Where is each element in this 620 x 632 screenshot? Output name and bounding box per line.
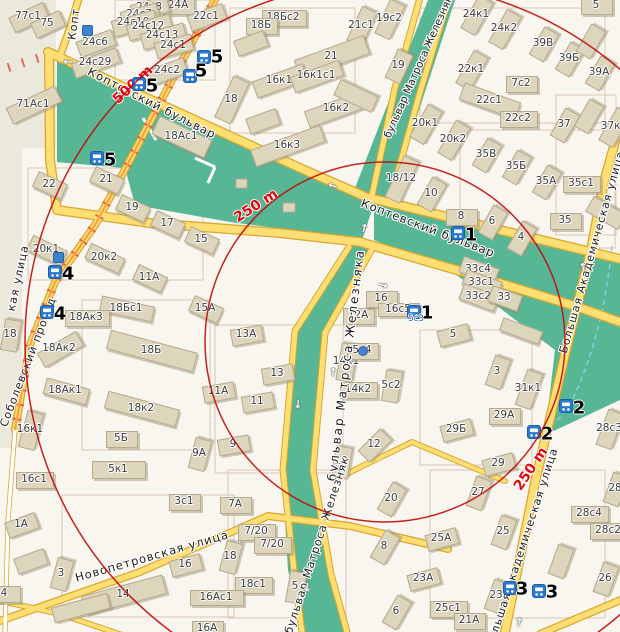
building-label: 18/12 <box>386 172 416 184</box>
building-label: 11А <box>139 271 160 283</box>
building-label: 5к1 <box>108 463 128 475</box>
oneway-arrow-icon: → <box>63 56 72 69</box>
building-label: 7А <box>228 498 242 510</box>
transit-stop-number[interactable]: 5 <box>104 150 117 171</box>
building-label: 35А <box>536 175 557 187</box>
building-label: 37 <box>557 118 570 130</box>
transit-stop-number[interactable]: 3 <box>546 582 559 603</box>
building-label: 7/20 <box>244 525 268 537</box>
building-label: 21с1 <box>348 19 374 31</box>
building-label: 9 <box>230 438 237 450</box>
building-label: 16к3 <box>274 139 300 151</box>
building-label: 3 <box>58 567 65 579</box>
building-label: 6 <box>489 215 496 227</box>
building-label: 22к1 <box>458 63 484 75</box>
building-label: 20 <box>384 492 397 504</box>
building-label: 5 <box>450 328 457 340</box>
building-label: 5Б <box>114 432 128 444</box>
transit-stop-number[interactable]: 2 <box>541 424 554 445</box>
building-label: 31к1 <box>515 382 541 394</box>
building-label: 16к1с1 <box>297 69 336 81</box>
building-label: 15А <box>195 302 216 314</box>
building-label: 13А <box>236 328 257 340</box>
oneway-arrow-icon: → <box>512 616 527 628</box>
label-layer: 77с17524А24с824с724с1024с1224с1324с124с6… <box>0 0 620 632</box>
building-label: 15 <box>194 233 207 245</box>
building-label: 18Б <box>251 19 272 31</box>
building-label: 16Ас1 <box>200 591 233 603</box>
building-label: 75 <box>40 17 53 29</box>
building-block <box>548 543 575 579</box>
building-block <box>13 548 49 575</box>
building-label: 3с1 <box>174 495 193 507</box>
building-label: 19с2 <box>376 12 402 24</box>
building-block <box>245 108 281 135</box>
building-label: 18к2 <box>128 402 154 414</box>
building-label: 22с2 <box>505 112 531 124</box>
building-label: 25А <box>431 532 452 544</box>
building-label: 24с1 <box>160 39 186 51</box>
building-label: 5 <box>593 0 600 11</box>
street-label: бульвар Матроса Железняк <box>282 455 352 632</box>
building-label: 18с1 <box>240 578 266 590</box>
poi-text-label: 5с3 <box>408 314 424 324</box>
building-label: 18Ак3 <box>69 311 103 323</box>
building-label: 5с2 <box>381 379 400 391</box>
building-label: 7/20 <box>260 538 284 550</box>
building-label: 26 <box>598 572 611 584</box>
building-label: 9А <box>192 447 206 459</box>
building-label: 14 <box>116 588 129 600</box>
building-label: 29Б <box>446 423 467 435</box>
building-label: 18Б <box>141 344 162 356</box>
transit-stop-number[interactable]: 1 <box>465 225 478 246</box>
building-label: 18 <box>224 93 237 105</box>
building-block <box>233 30 269 57</box>
transit-stop-number[interactable]: 5 <box>211 47 224 68</box>
oneway-arrow-icon: → <box>326 178 339 193</box>
building-label: 16к1 <box>17 423 43 435</box>
transit-stop-number[interactable]: 2 <box>573 398 586 419</box>
building-label: 24с6 <box>82 36 108 48</box>
building-label: 22с1 <box>193 10 219 22</box>
building-label: 33 <box>497 291 510 303</box>
oneway-arrow-icon: → <box>326 367 340 377</box>
building-label: 7с2 <box>511 77 530 89</box>
transit-stop-number[interactable]: 4 <box>62 264 75 285</box>
building-label: 28с2 <box>595 524 620 536</box>
building-label: 16к2 <box>323 102 349 114</box>
building-label: 24к2 <box>491 22 517 34</box>
street-label: кая улица <box>5 244 32 313</box>
building-label: 4 <box>1 587 8 599</box>
building-label: 13 <box>270 367 283 379</box>
building-label: 16с1 <box>21 473 47 485</box>
building-label: 19 <box>125 201 138 213</box>
building-label: 35с1 <box>568 177 594 189</box>
street-label: Копт <box>65 7 82 41</box>
transit-stop-number[interactable]: 3 <box>516 579 529 600</box>
building-label: 20к2 <box>91 251 117 263</box>
building-label: 12 <box>367 438 380 450</box>
poi-building-icon[interactable] <box>53 252 64 263</box>
building-label: 23А <box>413 572 434 584</box>
oneway-arrow-icon: → <box>291 399 305 409</box>
building-label: 25 <box>496 525 509 537</box>
building-label: 22 <box>42 178 55 190</box>
building-label: 17 <box>160 217 173 229</box>
building-label: 11А <box>208 385 229 397</box>
building-label: 27 <box>471 486 484 498</box>
building-label: 16 <box>178 558 191 570</box>
building-label: 20к2 <box>440 133 466 145</box>
building-label: 37к1 <box>601 120 620 132</box>
building-label: 18Бс1 <box>109 302 142 314</box>
building-label: 35 <box>558 214 571 226</box>
building-label: 28с3 <box>596 422 620 434</box>
building-label: 29А <box>494 409 515 421</box>
building-label: 24с2 <box>154 64 180 76</box>
building-label: 24А <box>168 0 189 11</box>
building-label: 28 <box>608 482 620 494</box>
building-label: 21 <box>99 173 112 185</box>
radius-distance-label: 250 m <box>231 186 281 226</box>
transit-stop-number[interactable]: 4 <box>54 304 67 325</box>
poi-dot-icon[interactable] <box>358 346 368 356</box>
building-label: 20к1 <box>412 117 438 129</box>
oneway-arrow-icon: → <box>300 581 314 592</box>
building-label: 16к1 <box>266 74 292 86</box>
building-label: 39Б <box>559 52 580 64</box>
transit-stop-number[interactable]: 5 <box>195 61 208 82</box>
building-label: 28с4 <box>576 507 602 519</box>
building-label: 16А <box>197 622 218 632</box>
building-label: 21А <box>459 614 480 626</box>
building-label: 6 <box>393 605 400 617</box>
building-label: 29 <box>491 457 504 469</box>
building-label: 18 <box>223 550 236 562</box>
map-canvas[interactable]: 77с17524А24с824с724с1024с1224с1324с124с6… <box>0 0 620 632</box>
building-label: 4 <box>518 231 525 243</box>
building-block <box>576 23 607 59</box>
building-label: 35Б <box>506 160 527 172</box>
building-block <box>574 98 605 134</box>
building-label: 24к1 <box>463 8 489 20</box>
building-label: 8 <box>458 210 465 222</box>
building-label: 35В <box>476 148 497 160</box>
building-label: 11 <box>250 395 263 407</box>
building-label: 39В <box>533 37 554 49</box>
transit-stop-number[interactable]: 5 <box>146 76 159 97</box>
poi-building-icon[interactable] <box>82 25 93 36</box>
oneway-arrow-icon: → <box>357 222 372 234</box>
building-label: 39А <box>589 66 610 78</box>
building-label: 3 <box>494 365 501 377</box>
building-label: 19 <box>391 59 404 71</box>
building-label: 18Ак1 <box>48 384 82 396</box>
building-label: 71Ас1 <box>17 98 50 110</box>
building-block <box>499 317 543 345</box>
building-label: 1А <box>14 518 28 530</box>
building-label: 22с1 <box>476 94 502 106</box>
building-label: 18Ак2 <box>42 342 76 354</box>
building-label: 8 <box>381 540 388 552</box>
building-label: 10 <box>424 187 437 199</box>
building-label: 18 <box>3 328 16 340</box>
